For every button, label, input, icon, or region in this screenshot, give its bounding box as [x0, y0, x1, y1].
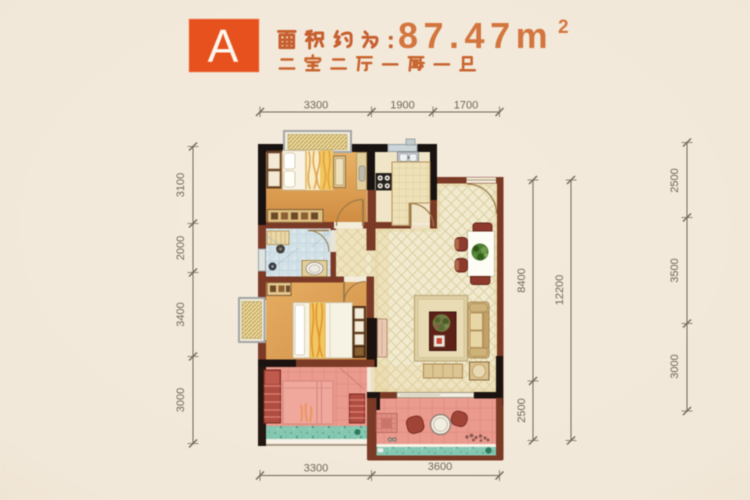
svg-text:8400: 8400	[516, 268, 528, 292]
svg-text:2500: 2500	[516, 398, 528, 422]
svg-text:2500: 2500	[669, 168, 681, 192]
svg-text:3000: 3000	[175, 388, 187, 412]
svg-text:87.47m: 87.47m	[398, 15, 553, 56]
svg-text:3600: 3600	[428, 461, 452, 473]
svg-text:3400: 3400	[175, 302, 187, 326]
svg-text:1700: 1700	[454, 100, 478, 112]
svg-text:3300: 3300	[304, 463, 328, 475]
svg-text:3000: 3000	[669, 354, 681, 378]
svg-text:2000: 2000	[175, 236, 187, 260]
svg-text:1900: 1900	[390, 100, 414, 112]
svg-text:3500: 3500	[669, 258, 681, 282]
svg-text:3100: 3100	[175, 173, 187, 197]
svg-text:12200: 12200	[554, 275, 566, 306]
svg-text:2: 2	[558, 17, 569, 38]
svg-text:A: A	[208, 20, 239, 72]
svg-text:3300: 3300	[304, 100, 328, 112]
